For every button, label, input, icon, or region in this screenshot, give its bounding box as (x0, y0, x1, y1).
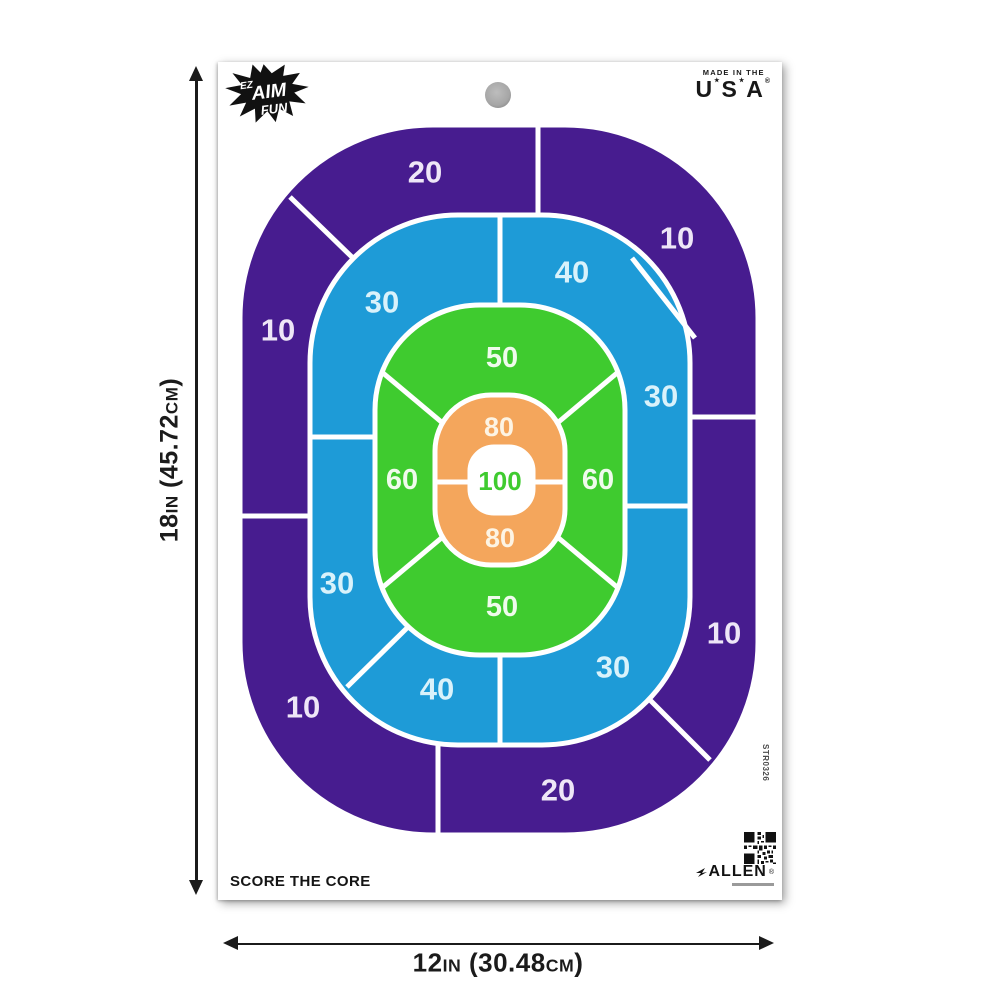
product-image: 18IN (45.72CM) 12IN (30.48CM) EZ AIM FUN… (0, 0, 1000, 1000)
score-label: 50 (486, 591, 518, 623)
width-unit-cm: CM (546, 956, 574, 976)
bullseye-score-label: 100 (478, 466, 521, 496)
score-label: 60 (582, 464, 614, 496)
score-label: 20 (541, 773, 575, 808)
height-paren: ) (156, 378, 184, 387)
score-label: 40 (555, 255, 589, 290)
score-label: 10 (261, 313, 295, 348)
height-dimension-label: 18IN (45.72CM) (156, 378, 185, 542)
score-label: 80 (484, 412, 514, 442)
target-sheet: EZ AIM FUN MADE IN THE U★S★A® (218, 62, 782, 900)
arrow-down-icon (189, 880, 203, 895)
height-cm-value: (45.72 (156, 414, 184, 495)
height-dimension-line (195, 79, 198, 882)
score-label: 10 (286, 690, 320, 725)
score-label: 10 (707, 616, 741, 651)
height-unit-cm: CM (163, 387, 182, 414)
arrow-left-icon (223, 936, 238, 950)
width-dimension-label: 12IN (30.48CM) (413, 948, 584, 979)
width-dimension-line (236, 943, 760, 946)
allen-logo: ALLEN ® (696, 863, 775, 886)
score-label: 30 (596, 650, 630, 685)
width-paren: ) (574, 948, 583, 978)
score-label: 80 (485, 523, 515, 553)
arrow-up-icon (189, 66, 203, 81)
hang-hole (485, 82, 511, 108)
height-unit-in: IN (163, 495, 182, 513)
fine-print-bar (732, 883, 774, 886)
registered-mark: ® (769, 869, 774, 876)
allen-name: ALLEN (709, 863, 767, 881)
arrow-right-icon (759, 936, 774, 950)
width-unit-in: IN (443, 956, 462, 976)
score-label: 30 (365, 285, 399, 320)
score-label: 60 (386, 464, 418, 496)
score-label: 10 (660, 221, 694, 256)
sku-code: STR0326 (761, 744, 770, 781)
height-value: 18 (156, 513, 184, 542)
score-target-graphic: 20 10 10 20 10 10 30 40 30 30 40 30 50 6… (218, 62, 782, 900)
width-cm-value: (30.48 (461, 948, 545, 978)
score-label: 30 (644, 379, 678, 414)
score-label: 30 (320, 566, 354, 601)
score-label: 20 (408, 155, 442, 190)
score-label: 50 (486, 342, 518, 374)
width-value: 12 (413, 948, 443, 978)
score-label: 40 (420, 672, 454, 707)
tagline-score-the-core: SCORE THE CORE (230, 873, 371, 890)
allen-by-mark-icon (696, 867, 707, 878)
